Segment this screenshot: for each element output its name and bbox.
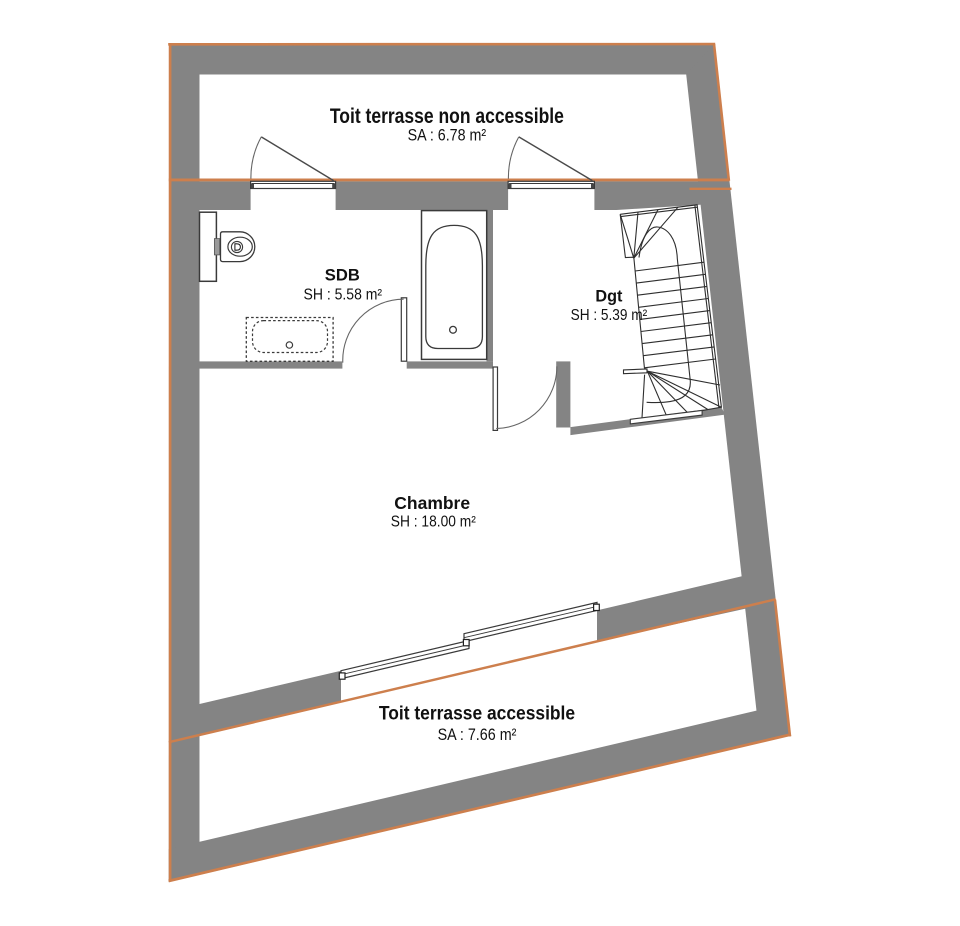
svg-text:SH : 18.00 m²: SH : 18.00 m² [391,514,476,531]
svg-text:SDB: SDB [325,266,360,284]
svg-text:SH : 5.58 m²: SH : 5.58 m² [304,286,383,303]
svg-text:SH : 5.39 m²: SH : 5.39 m² [571,307,648,324]
svg-text:SA : 6.78 m²: SA : 6.78 m² [408,126,487,145]
svg-text:Toit terrasse accessible: Toit terrasse accessible [379,703,575,725]
svg-text:Dgt: Dgt [595,287,622,305]
svg-text:Chambre: Chambre [394,493,470,513]
svg-text:SA : 7.66 m²: SA : 7.66 m² [438,725,517,744]
